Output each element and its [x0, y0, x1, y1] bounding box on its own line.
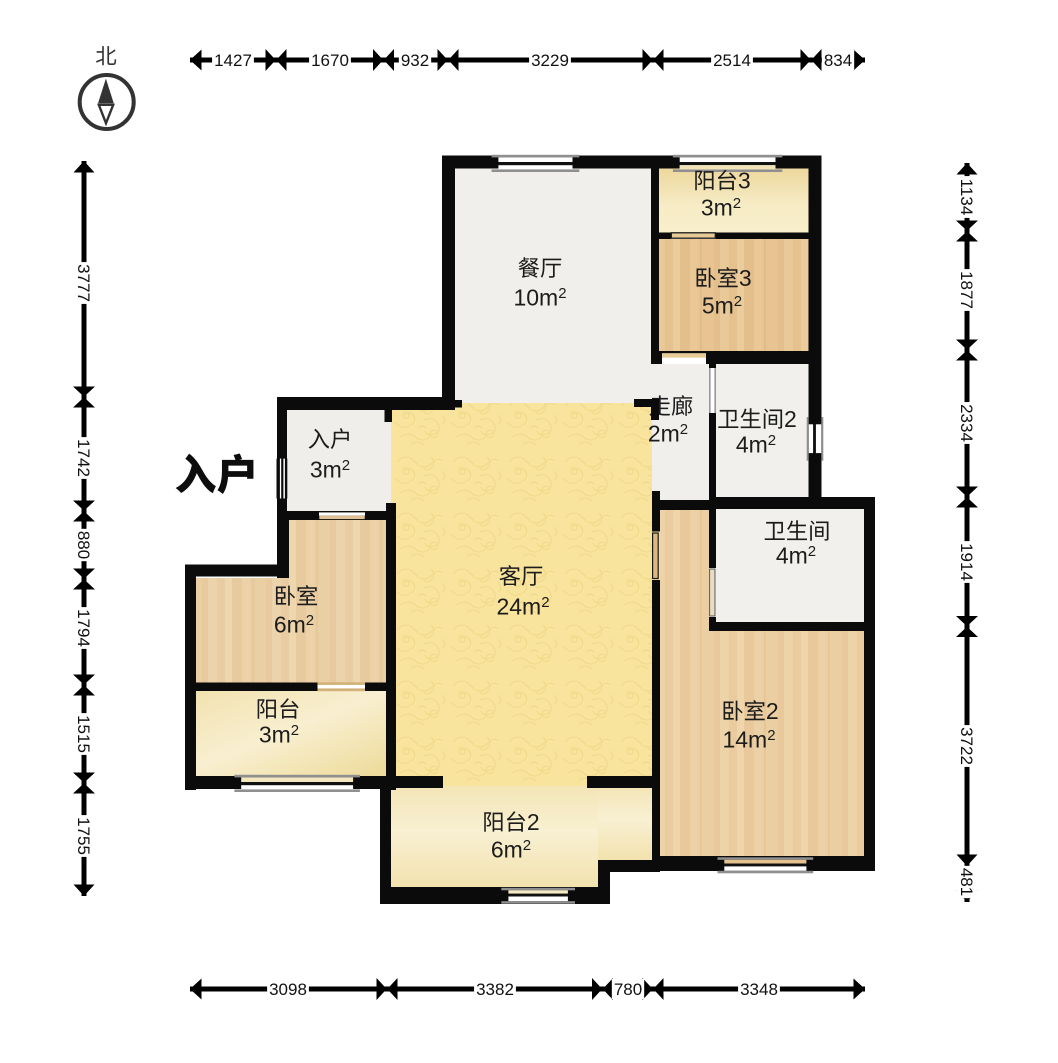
svg-text:3348: 3348: [740, 980, 778, 999]
svg-text:1877: 1877: [957, 271, 976, 309]
svg-text:1794: 1794: [74, 609, 93, 647]
svg-text:1427: 1427: [214, 51, 252, 70]
svg-text:834: 834: [824, 51, 852, 70]
svg-text:3382: 3382: [476, 980, 514, 999]
svg-text:2: 2: [784, 406, 797, 432]
svg-text:3098: 3098: [269, 980, 307, 999]
svg-text:780: 780: [614, 980, 642, 999]
svg-text:3: 3: [739, 265, 752, 291]
svg-text:1742: 1742: [74, 439, 93, 477]
svg-text:2514: 2514: [713, 51, 751, 70]
svg-text:1134: 1134: [957, 179, 976, 216]
svg-text:3: 3: [738, 168, 751, 194]
svg-text:2: 2: [766, 698, 779, 724]
svg-text:3229: 3229: [531, 51, 569, 70]
svg-text:481: 481: [957, 868, 976, 896]
svg-text:2334: 2334: [957, 404, 976, 442]
svg-text:880: 880: [74, 531, 93, 559]
svg-text:1515: 1515: [74, 715, 93, 753]
svg-text:3777: 3777: [74, 264, 93, 302]
svg-text:3722: 3722: [957, 727, 976, 765]
svg-text:1670: 1670: [311, 51, 349, 70]
svg-text:1914: 1914: [957, 543, 976, 581]
svg-text:932: 932: [401, 51, 429, 70]
svg-text:1755: 1755: [74, 817, 93, 855]
svg-text:2: 2: [527, 809, 540, 835]
